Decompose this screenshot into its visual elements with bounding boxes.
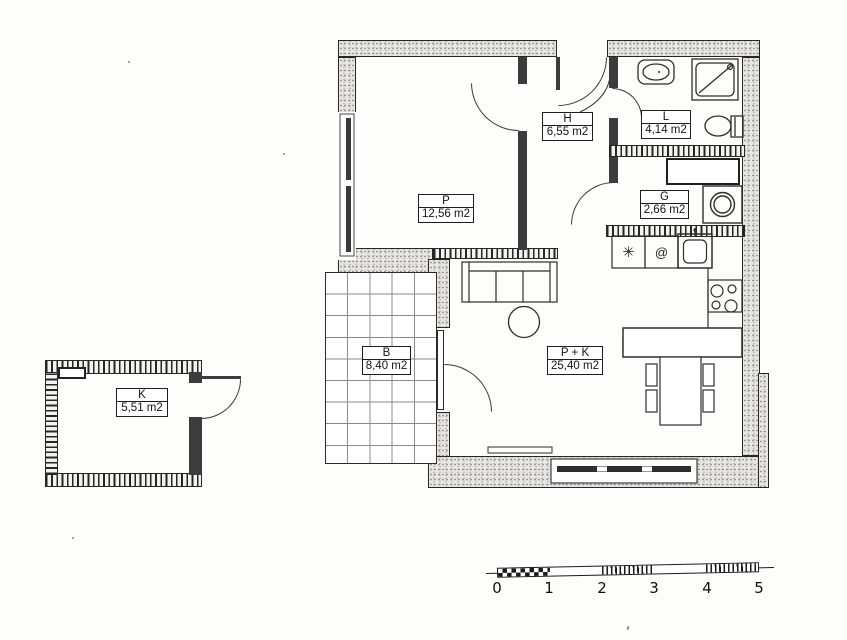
scale-tick-5: 5 <box>748 579 770 597</box>
wc-g-door-arc <box>571 182 614 225</box>
wall-right-step <box>758 373 769 488</box>
round-table <box>509 307 540 338</box>
room-letter-K: K <box>117 389 167 402</box>
bath-l-door-arc <box>612 88 642 118</box>
hall-closet <box>666 158 740 185</box>
wall-top-right <box>607 40 760 57</box>
scan-speck <box>72 537 74 539</box>
wall-bottom <box>428 456 762 488</box>
room-area-L: 4,14 m2 <box>642 124 690 138</box>
washing-machine <box>703 186 742 223</box>
wall-under-l <box>609 145 745 157</box>
k-wall-left <box>45 372 58 475</box>
room-area-H: 6,55 m2 <box>543 126 592 140</box>
scan-speck <box>626 626 629 630</box>
floorplan-canvas: ✳ @ P 12,56 m2 H 6,55 m2 L 4,14 m2 G 2,6… <box>0 0 847 640</box>
appliance-star-icon: ✳ <box>612 236 645 268</box>
bar-counter <box>623 328 742 357</box>
room-label-K: K 5,51 m2 <box>116 388 168 417</box>
wall-p-h <box>518 131 527 250</box>
sofa <box>462 262 557 302</box>
wall-left-upper <box>338 57 356 115</box>
wall-g-left <box>609 157 618 183</box>
wall-p-h-stub <box>518 57 527 84</box>
dining-set <box>646 357 714 425</box>
scale-tick-0: 0 <box>486 579 508 597</box>
k-wall-niche <box>58 367 86 379</box>
scan-speck <box>283 153 285 155</box>
room-area-B: 8,40 m2 <box>363 360 410 374</box>
wall-h-l-upper <box>609 57 618 88</box>
room-letter-P: P <box>419 195 473 208</box>
scale-tick-3: 3 <box>643 579 665 597</box>
scale-tick-1: 1 <box>538 579 560 597</box>
scale-segment-4-5 <box>706 563 758 572</box>
room-label-G: G 2,66 m2 <box>640 190 689 219</box>
radiator <box>488 447 552 453</box>
room-area-P: 12,56 m2 <box>419 208 473 222</box>
room-label-PK: P + K 25,40 m2 <box>547 346 603 375</box>
wall-under-p <box>433 248 558 259</box>
room-label-H: H 6,55 m2 <box>542 112 593 141</box>
k-wall-right-lower <box>189 417 202 475</box>
scale-segment-0-1 <box>498 567 550 576</box>
room-label-L: L 4,14 m2 <box>641 110 691 139</box>
balcony-door-arc <box>444 364 492 412</box>
stove <box>708 280 742 312</box>
room-area-PK: 25,40 m2 <box>548 360 602 374</box>
room-p-door-arc <box>471 83 519 131</box>
wall-top-left <box>338 40 557 57</box>
room-label-B: B 8,40 m2 <box>362 346 411 375</box>
scale-segment-2-3 <box>602 565 654 574</box>
balcony-door-leaf <box>437 330 444 410</box>
shower <box>692 59 738 100</box>
scan-speck <box>128 61 130 63</box>
room-area-G: 2,66 m2 <box>641 204 688 218</box>
room-letter-PK: P + K <box>548 347 602 360</box>
appliance-spiral-icon: @ <box>645 236 678 268</box>
room-area-K: 5,51 m2 <box>117 402 167 416</box>
room-letter-L: L <box>642 111 690 124</box>
wall-h-l-lower <box>609 118 618 145</box>
scale-tick-2: 2 <box>591 579 613 597</box>
washbasin <box>638 60 674 84</box>
left-window-opening <box>338 112 356 260</box>
k-door-arc <box>201 379 241 419</box>
scale-bar <box>497 562 759 577</box>
room-letter-B: B <box>363 347 410 360</box>
room-label-P: P 12,56 m2 <box>418 194 474 223</box>
room-letter-H: H <box>543 113 592 126</box>
room-letter-G: G <box>641 191 688 204</box>
scale-segment-3-4 <box>654 564 706 573</box>
k-wall-bottom <box>45 473 202 487</box>
scale-tick-4: 4 <box>696 579 718 597</box>
toilet <box>705 116 743 137</box>
entrance-door-arc <box>558 57 607 106</box>
scale-segment-1-2 <box>550 566 602 575</box>
